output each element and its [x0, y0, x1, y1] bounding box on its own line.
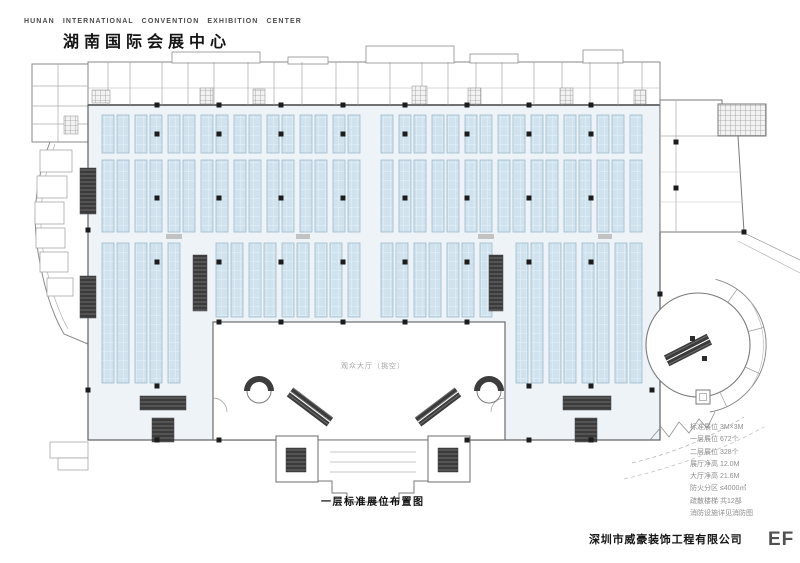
booth-column: [432, 160, 444, 232]
booth-column: [564, 243, 576, 383]
legend-row: 消防设施详见消防图: [690, 508, 753, 520]
column-dot: [279, 260, 284, 265]
service-core: [560, 88, 573, 104]
booth-column: [168, 243, 180, 383]
column-dot: [527, 438, 532, 443]
booth-column: [480, 160, 492, 232]
booth-column: [564, 115, 576, 153]
stair-core: [438, 448, 458, 472]
booth-column: [117, 160, 129, 232]
annex-room: [58, 458, 88, 470]
roof-bump-room: [366, 46, 454, 63]
legend-notes: 标准展位 3M×3M一层展位 672个二层展位 328个展厅净高 12.0M大厅…: [690, 422, 753, 520]
booth-column: [117, 243, 129, 383]
booth-column: [531, 160, 543, 232]
service-core: [468, 88, 481, 104]
booth-column: [480, 115, 492, 153]
stair-core: [563, 396, 611, 410]
column-dot: [217, 438, 222, 443]
column-dot: [465, 196, 470, 201]
column-dot: [403, 260, 408, 265]
column-dot: [527, 260, 532, 265]
booth-column: [135, 243, 147, 383]
stair-core: [575, 418, 597, 442]
column-dot: [155, 196, 160, 201]
booth-column: [249, 160, 261, 232]
booth-column: [282, 243, 294, 317]
booth-column: [429, 243, 441, 317]
service-core: [92, 90, 110, 103]
booth-column: [183, 115, 195, 153]
booth-column: [249, 243, 261, 317]
legend-row: 大厅净高 21.6M: [690, 471, 753, 483]
column-dot: [465, 103, 470, 108]
booth-column: [612, 115, 624, 153]
booth-column: [234, 115, 246, 153]
sheet-code: EF: [768, 529, 794, 551]
booth-column: [117, 115, 129, 153]
booth-column: [612, 160, 624, 232]
column-dot: [217, 132, 222, 137]
aisle-label-mark: [478, 234, 494, 239]
booth-column: [597, 160, 609, 232]
booth-column: [135, 115, 147, 153]
booth-column: [447, 115, 459, 153]
legend-row: 展厅净高 12.0M: [690, 459, 753, 471]
column-dot: [650, 388, 655, 393]
booth-column: [348, 243, 360, 317]
floor-plan-drawing: [0, 0, 800, 563]
aisle-label-mark: [166, 234, 182, 239]
column-dot: [674, 140, 679, 145]
stair-core: [140, 396, 186, 410]
legend-row: 疏散楼梯 共12部: [690, 496, 753, 508]
stair-core: [80, 168, 96, 214]
service-core: [412, 86, 427, 104]
booth-column: [267, 160, 279, 232]
loading-dock: [718, 104, 766, 136]
booth-column: [432, 115, 444, 153]
column-dot: [341, 196, 346, 201]
column-dot: [403, 132, 408, 137]
booth-column: [630, 243, 642, 383]
booth-column: [135, 160, 147, 232]
lobby-label: 观众大厅（挑空）: [341, 361, 405, 371]
booth-column: [516, 243, 528, 383]
column-dot: [341, 320, 346, 325]
booth-column: [630, 115, 642, 153]
column-dot: [279, 132, 284, 137]
booth-column: [546, 115, 558, 153]
column-dot: [658, 292, 663, 297]
annex-room: [37, 176, 67, 198]
booth-column: [201, 160, 213, 232]
booth-column: [615, 243, 627, 383]
column-dot: [465, 438, 470, 443]
stair-core: [80, 276, 96, 318]
booth-column: [102, 115, 114, 153]
booth-column: [498, 115, 510, 153]
booth-column: [168, 160, 180, 232]
aisle-label-mark: [598, 234, 612, 239]
booth-column: [183, 160, 195, 232]
legend-row: 一层展位 672个: [690, 434, 753, 446]
column-dot: [155, 260, 160, 265]
booth-column: [513, 160, 525, 232]
column-dot: [403, 196, 408, 201]
booth-column: [216, 243, 228, 317]
column-dot: [465, 260, 470, 265]
stair-core: [286, 448, 306, 472]
booth-column: [249, 115, 261, 153]
booth-column: [231, 243, 243, 317]
booth-column: [315, 160, 327, 232]
service-core: [200, 88, 213, 104]
column-dot: [527, 132, 532, 137]
booth-column: [396, 243, 408, 317]
annex-room: [47, 278, 73, 296]
column-dot: [279, 320, 284, 325]
column-dot: [155, 103, 160, 108]
booth-column: [462, 243, 474, 317]
service-core: [634, 90, 646, 104]
legend-row: 标准展位 3M×3M: [690, 422, 753, 434]
booth-column: [531, 243, 543, 383]
column-dot: [589, 384, 594, 389]
booth-column: [414, 160, 426, 232]
booth-column: [282, 160, 294, 232]
column-dot: [589, 132, 594, 137]
column-dot: [674, 186, 679, 191]
column-dot: [589, 196, 594, 201]
booth-column: [597, 243, 609, 383]
roof-bump-room: [172, 52, 260, 63]
service-core: [253, 89, 265, 104]
column-dot: [403, 103, 408, 108]
booth-column: [630, 160, 642, 232]
booth-column: [102, 160, 114, 232]
legend-row: 二层展位 328个: [690, 447, 753, 459]
booth-column: [330, 243, 342, 317]
stair-core: [489, 255, 503, 311]
booth-column: [549, 243, 561, 383]
column-dot: [589, 438, 594, 443]
booth-column: [447, 243, 459, 317]
booth-column: [234, 160, 246, 232]
annex-room: [40, 252, 68, 272]
booth-column: [498, 160, 510, 232]
booth-column: [282, 115, 294, 153]
booth-column: [546, 160, 558, 232]
legend-row: 防火分区 ≤4000㎡: [690, 483, 753, 495]
column-dot: [279, 103, 284, 108]
column-dot: [155, 132, 160, 137]
column-dot: [86, 228, 91, 233]
column-dot: [341, 103, 346, 108]
booth-column: [168, 115, 180, 153]
booth-column: [315, 115, 327, 153]
booth-column: [102, 243, 114, 383]
booth-column: [348, 160, 360, 232]
roof-bump-room: [583, 50, 623, 63]
column-dot: [403, 320, 408, 325]
roof-bump-room: [288, 57, 328, 64]
booth-column: [414, 243, 426, 317]
booth-column: [447, 160, 459, 232]
column-dot: [217, 320, 222, 325]
column-dot: [341, 132, 346, 137]
column-dot: [742, 230, 747, 235]
column-dot: [341, 260, 346, 265]
column-dot: [155, 438, 160, 443]
booth-column: [381, 243, 393, 317]
drawing-caption: 一层标准展位布置图: [321, 493, 425, 508]
floor-plan-page: HUNAN INTERNATIONAL CONVENTION EXHIBITIO…: [0, 0, 800, 563]
column-dot: [527, 103, 532, 108]
booth-column: [348, 115, 360, 153]
column-dot: [217, 196, 222, 201]
annex-room: [35, 202, 64, 224]
column-dot: [155, 384, 160, 389]
booth-column: [267, 115, 279, 153]
booth-column: [300, 115, 312, 153]
booth-column: [264, 243, 276, 317]
column-dot: [86, 388, 91, 393]
booth-column: [300, 160, 312, 232]
aisle-label-mark: [296, 234, 310, 239]
column-dot: [589, 260, 594, 265]
column-dot: [527, 384, 532, 389]
column-dot: [217, 103, 222, 108]
company-name: 深圳市威豪装饰工程有限公司: [589, 531, 742, 547]
booth-column: [597, 115, 609, 153]
annex-room: [40, 150, 72, 172]
booth-column: [381, 115, 393, 153]
column-dot: [465, 132, 470, 137]
column-dot: [527, 196, 532, 201]
booth-column: [531, 115, 543, 153]
column-dot: [465, 320, 470, 325]
booth-column: [315, 243, 327, 317]
booth-column: [201, 115, 213, 153]
stair-core: [193, 255, 207, 311]
column-dot: [589, 103, 594, 108]
roof-bump-room: [470, 54, 518, 63]
booth-column: [414, 115, 426, 153]
booth-column: [564, 160, 576, 232]
annex-room: [36, 228, 65, 248]
column-dot: [217, 260, 222, 265]
service-core: [64, 116, 78, 134]
booth-column: [513, 115, 525, 153]
booth-column: [297, 243, 309, 317]
column-dot: [279, 196, 284, 201]
annex-room: [50, 442, 88, 458]
booth-column: [381, 160, 393, 232]
